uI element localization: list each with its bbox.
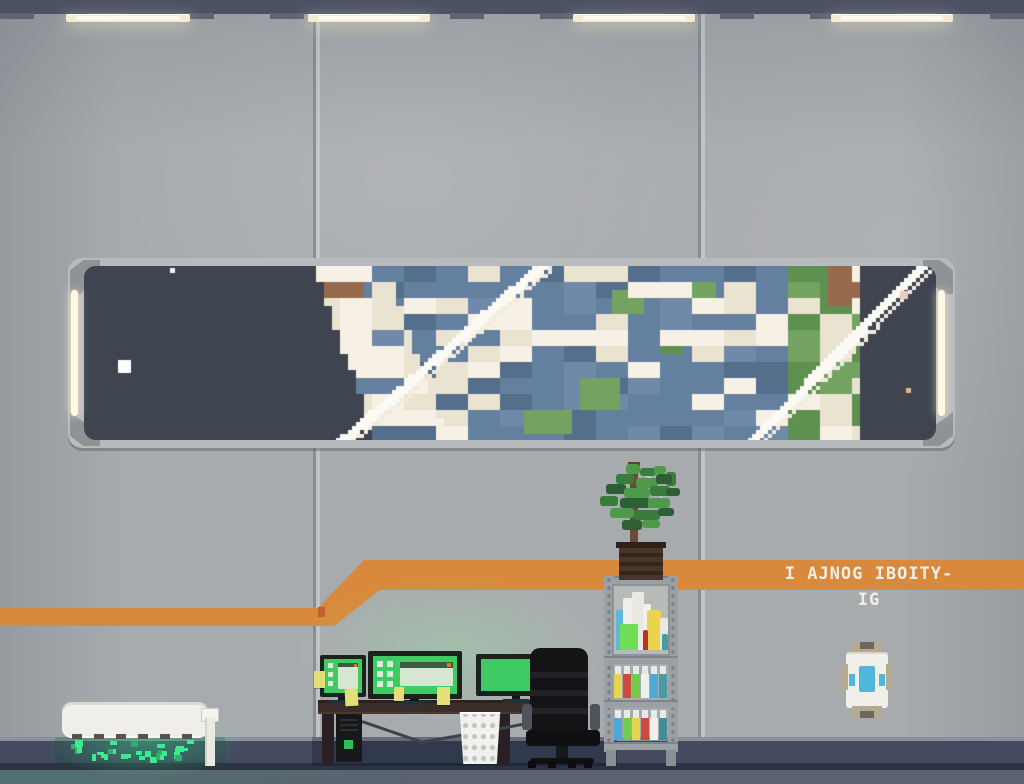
screen-icon — [328, 663, 333, 668]
bottle — [614, 674, 622, 698]
desk-leg — [498, 714, 510, 764]
bottle — [659, 674, 667, 698]
desk-leg — [322, 714, 334, 764]
ceiling — [0, 0, 1024, 14]
window-light-strip — [938, 290, 945, 416]
screen-icon — [377, 681, 383, 687]
leaf — [666, 488, 680, 496]
sticky-note — [314, 671, 325, 688]
screen-panel-dot — [447, 663, 451, 667]
flask — [620, 624, 638, 650]
grow-light-pixel — [108, 749, 112, 754]
shelf-bar — [604, 742, 678, 750]
bottle-cap — [660, 710, 666, 718]
ceiling-light — [308, 14, 430, 22]
chair-seat — [526, 730, 600, 746]
device-display — [859, 666, 875, 692]
bottle — [650, 674, 658, 698]
computer-tower[interactable] — [336, 714, 362, 762]
screen-panel — [400, 662, 453, 686]
chair-caster — [584, 761, 592, 768]
planet-view — [84, 266, 936, 440]
leaf — [622, 520, 642, 530]
sticky-note — [345, 689, 359, 707]
bottle-cap — [624, 710, 630, 718]
window-glass — [84, 266, 936, 440]
flask — [662, 634, 668, 650]
floor-glow-tint — [0, 770, 420, 784]
grow-light-pixel — [104, 754, 108, 760]
grow-lights — [66, 740, 206, 764]
bottle-cap — [651, 710, 657, 718]
leaf — [620, 498, 650, 508]
ceiling-light — [66, 14, 190, 22]
shelf-leg — [666, 750, 676, 766]
chair-cushion — [530, 672, 588, 678]
grow-light-pixel — [136, 751, 141, 755]
leaf — [610, 508, 634, 518]
screen-icon — [377, 661, 383, 667]
bottle-cap — [615, 666, 621, 674]
bottle — [659, 718, 667, 740]
screen-icon — [328, 672, 333, 677]
device-light — [879, 674, 885, 686]
specimen-shelf[interactable] — [604, 576, 678, 766]
bottle — [650, 718, 658, 740]
potted-plant[interactable] — [596, 458, 696, 580]
bottle-row — [612, 664, 670, 700]
shelf-bar — [604, 700, 678, 708]
leaf — [600, 496, 618, 506]
bottle-cap — [642, 710, 648, 718]
bottle — [623, 674, 631, 698]
screen-icon — [387, 661, 393, 667]
machine-body — [62, 702, 208, 738]
chair-cushion — [530, 708, 588, 714]
bottle — [632, 674, 640, 698]
plant-pot — [619, 548, 663, 580]
machine-vents — [72, 734, 198, 739]
flask — [643, 630, 648, 650]
leaf — [656, 474, 672, 484]
grow-light-pixel — [175, 755, 182, 761]
monitor-left[interactable] — [320, 655, 366, 697]
sticky-note — [394, 687, 404, 701]
office-chair[interactable] — [522, 646, 608, 768]
game-scene: I AJNOG IBOITY-IG — [0, 0, 1024, 784]
leaf — [624, 488, 650, 498]
leaf — [642, 520, 660, 528]
grow-light-pixel — [160, 755, 163, 760]
device-tab — [842, 664, 848, 690]
grow-light-pixel — [110, 741, 117, 745]
chair-cushion — [530, 690, 588, 696]
device-light — [849, 674, 855, 686]
leaf — [654, 466, 666, 474]
leaf — [658, 508, 674, 516]
grow-light-pixel — [139, 756, 145, 760]
grow-light-pixel — [157, 744, 165, 748]
ceiling-light — [831, 14, 953, 22]
leaf — [634, 510, 660, 520]
device-tab — [886, 664, 892, 690]
bottle-cap — [615, 710, 621, 718]
bottle — [641, 674, 649, 698]
hydroponic-machine[interactable] — [62, 700, 222, 766]
window-light-strip — [71, 290, 78, 416]
leaf — [606, 484, 626, 494]
device-clip — [860, 642, 874, 649]
device-clip — [860, 711, 874, 718]
grow-light-pixel — [131, 741, 138, 747]
bottle-cap — [660, 666, 666, 674]
bottle-cap — [624, 666, 630, 674]
machine-pipe — [205, 718, 215, 766]
ceiling-light — [573, 14, 695, 22]
bottle — [632, 718, 640, 740]
bottle — [614, 718, 622, 740]
bottle — [641, 718, 649, 740]
grow-light-pixel — [75, 740, 83, 747]
wall-signage-text: I AJNOG IBOITY-IG — [776, 561, 962, 587]
screen-icon — [387, 681, 393, 687]
leaf — [626, 464, 640, 474]
screen-icon — [377, 671, 383, 677]
screen-icon — [387, 671, 393, 677]
grow-light-pixel — [175, 748, 179, 755]
flask — [647, 610, 661, 650]
bottle — [623, 718, 631, 740]
grow-light-pixel — [92, 754, 96, 760]
power-button[interactable] — [344, 740, 353, 749]
screen-window — [338, 663, 358, 689]
chair-armrest — [522, 704, 532, 730]
chair-caster — [548, 761, 556, 768]
bottle-cap — [642, 666, 648, 674]
chair-armrest — [590, 704, 600, 730]
grow-light-pixel — [77, 746, 82, 753]
screen-icon — [328, 681, 333, 686]
bottle-row — [612, 708, 670, 742]
glass-cabinet — [612, 584, 670, 656]
leaf — [616, 474, 634, 484]
grow-light-pixel — [187, 740, 194, 743]
chair-caster — [568, 761, 576, 768]
wall-intercom[interactable] — [842, 642, 892, 718]
sticky-note — [437, 687, 450, 705]
bottle-cap — [633, 710, 639, 718]
waste-basket[interactable] — [458, 712, 502, 764]
monitor-foot — [400, 701, 428, 705]
shelf-leg — [606, 750, 616, 766]
screen-window-dot — [354, 664, 357, 667]
shelf-bar — [604, 656, 678, 664]
bottle-cap — [651, 666, 657, 674]
grow-light-pixel — [127, 754, 131, 759]
bottle-cap — [633, 666, 639, 674]
observation-window — [68, 258, 955, 448]
chair-caster — [528, 761, 536, 768]
leaf — [648, 498, 670, 508]
